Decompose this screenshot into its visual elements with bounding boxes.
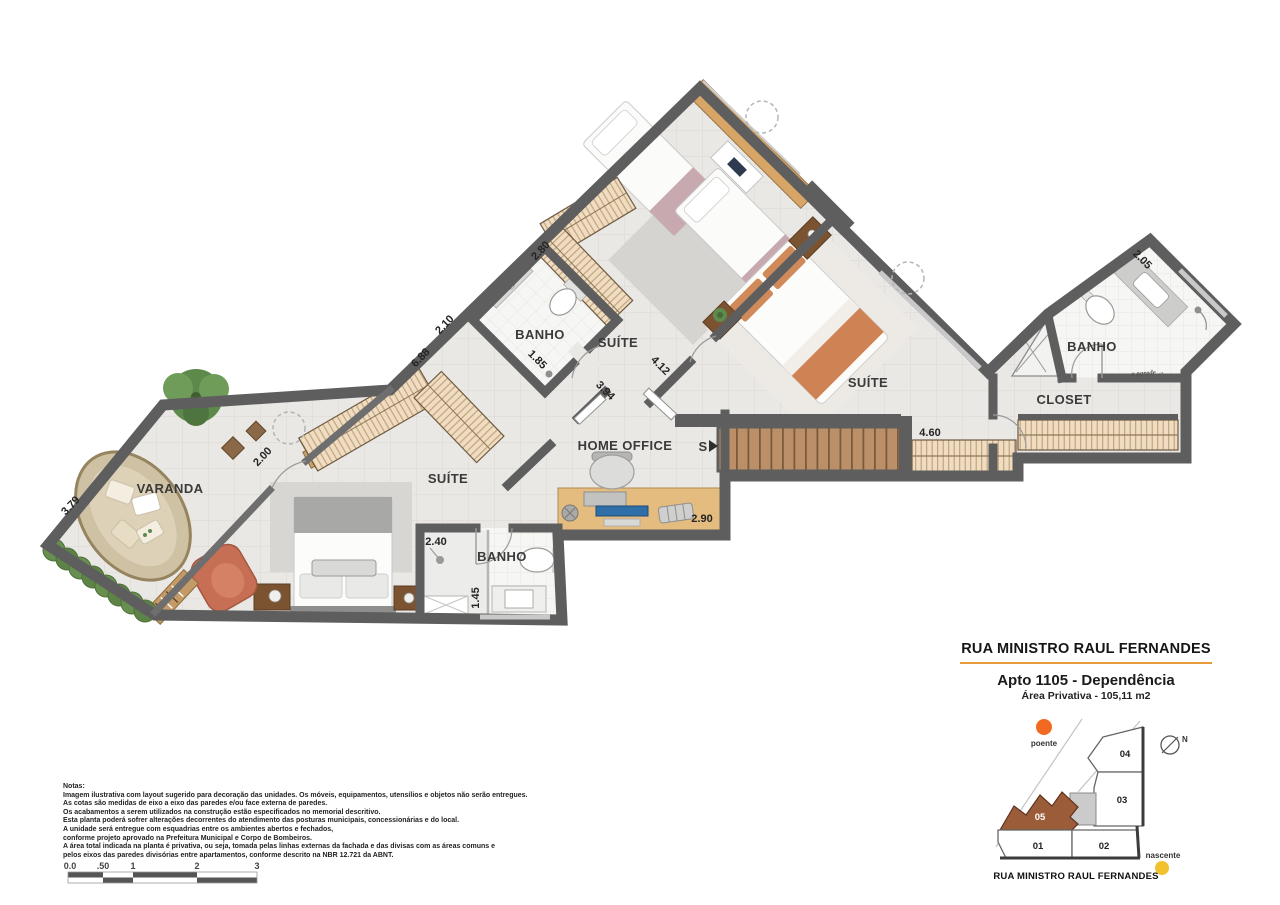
dim-145: 1.45 bbox=[470, 587, 482, 608]
scale-tick-2: 1 bbox=[130, 861, 135, 871]
label-suite-right: SUÍTE bbox=[848, 375, 888, 390]
scale-tick-3: 2 bbox=[194, 861, 199, 871]
stairs-up-marker: S bbox=[698, 439, 707, 454]
stair-handrail bbox=[675, 414, 901, 427]
floor-plan-page: SUÍTE BANHO SUÍTE BANHO CLOSET HOME OFFI… bbox=[0, 0, 1280, 905]
note-line: pelos eixos das paredes divisórias entre… bbox=[63, 852, 533, 861]
site-label-01: 01 bbox=[1033, 841, 1044, 852]
label-banho-bottom: BANHO bbox=[477, 549, 527, 564]
scale-tick-4: 3 bbox=[254, 861, 259, 871]
note-line: Os acabamentos a serem utilizados na con… bbox=[63, 809, 533, 818]
wardrobe-hall bbox=[912, 440, 1016, 472]
note-line: Notas: bbox=[63, 783, 533, 792]
west-sun-dot bbox=[1036, 719, 1052, 735]
title-private-area: Área Privativa - 105,11 m2 bbox=[950, 690, 1222, 702]
scale-tick-0: 0.0 bbox=[64, 861, 77, 871]
dim-290: 2.90 bbox=[691, 513, 712, 525]
title-accent-rule bbox=[960, 662, 1212, 664]
label-banho-top: BANHO bbox=[515, 327, 565, 342]
note-line: A unidade será entregue com esquadrias e… bbox=[63, 826, 533, 835]
site-unit-04 bbox=[1088, 727, 1143, 772]
east-label: nascente bbox=[1146, 851, 1181, 860]
north-arrow: N bbox=[1161, 735, 1188, 754]
dim-460: 4.60 bbox=[919, 427, 940, 439]
office-chair bbox=[590, 452, 634, 489]
site-label-04: 04 bbox=[1120, 749, 1131, 760]
note-line: Imagem ilustrativa com layout sugerido p… bbox=[63, 792, 533, 801]
label-banho-right: BANHO bbox=[1067, 339, 1117, 354]
notes-block: Notas: Imagem ilustrativa com layout sug… bbox=[63, 783, 533, 860]
title-apartment: Apto 1105 - Dependência bbox=[950, 672, 1222, 689]
note-line: As cotas são medidas de eixo a eixo das … bbox=[63, 800, 533, 809]
floor-plan-drawing: SUÍTE BANHO SUÍTE BANHO CLOSET HOME OFFI… bbox=[0, 0, 1280, 905]
nightstand-master-left bbox=[254, 584, 290, 610]
master-bed bbox=[290, 497, 396, 618]
plant-core bbox=[717, 312, 723, 318]
site-street-label: RUA MINISTRO RAUL FERNANDES bbox=[993, 871, 1158, 882]
scale-bar: 0.0 .50 1 2 3 bbox=[64, 861, 260, 883]
site-label-03: 03 bbox=[1117, 795, 1128, 806]
label-varanda: VARANDA bbox=[137, 481, 204, 496]
label-suite-master: SUÍTE bbox=[428, 471, 468, 486]
label-home-office: HOME OFFICE bbox=[578, 438, 673, 453]
note-line: Esta planta poderá sofrer alterações dec… bbox=[63, 817, 533, 826]
bath-mat bbox=[424, 596, 468, 614]
north-label: N bbox=[1182, 735, 1188, 744]
title-block: RUA MINISTRO RAUL FERNANDES Apto 1105 - … bbox=[950, 641, 1222, 702]
dim-240: 2.40 bbox=[425, 536, 446, 548]
label-closet: CLOSET bbox=[1036, 392, 1091, 407]
wardrobe-closet bbox=[1018, 414, 1178, 450]
note-line: A área total indicada na planta é privat… bbox=[63, 843, 533, 852]
west-label: poente bbox=[1031, 739, 1058, 748]
site-plan: 04 03 05 01 02 poente N nascente RUA MIN… bbox=[993, 719, 1188, 882]
site-unit-05 bbox=[1000, 792, 1078, 830]
label-suite-top: SUÍTE bbox=[598, 335, 638, 350]
home-office-desk bbox=[558, 488, 722, 534]
title-street: RUA MINISTRO RAUL FERNANDES bbox=[950, 641, 1222, 657]
site-label-05: 05 bbox=[1035, 812, 1046, 823]
site-label-02: 02 bbox=[1099, 841, 1110, 852]
note-line: conforme projeto aprovado na Prefeitura … bbox=[63, 835, 533, 844]
scale-tick-1: .50 bbox=[97, 861, 110, 871]
